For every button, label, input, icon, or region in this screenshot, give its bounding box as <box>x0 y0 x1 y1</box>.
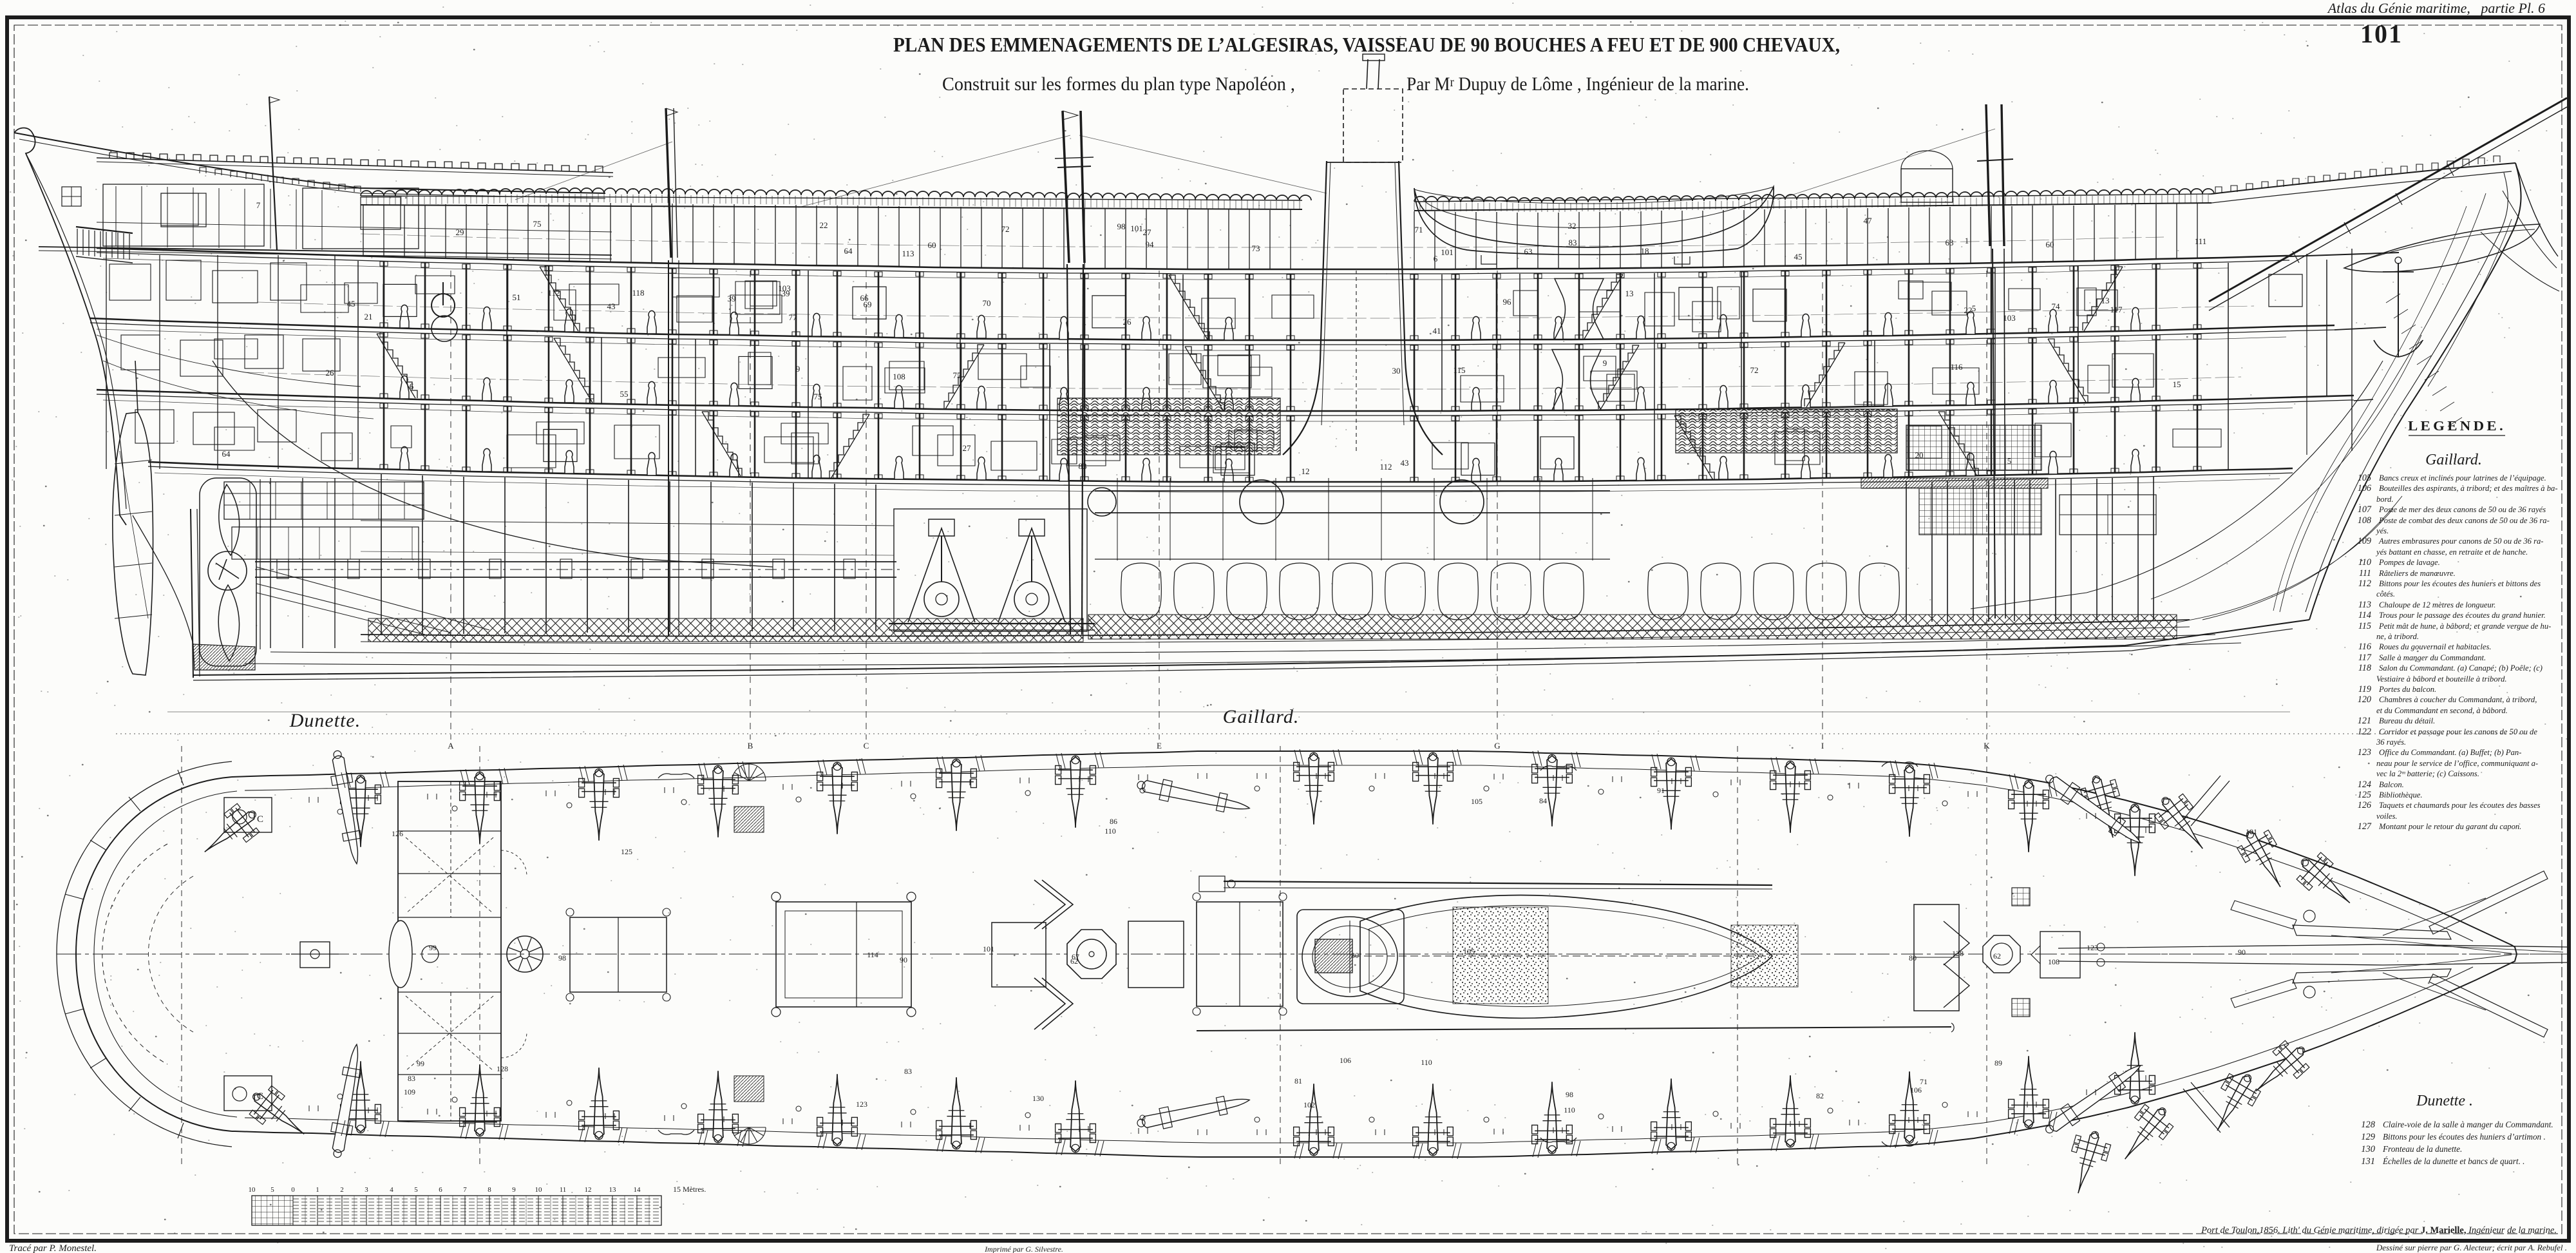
svg-text:101: 101 <box>2246 827 2257 836</box>
svg-text:9: 9 <box>512 1186 516 1194</box>
svg-text:Échelles de la dunette et banc: Échelles de la dunette et bancs de quart… <box>2382 1156 2524 1166</box>
svg-text:124: 124 <box>2358 780 2371 790</box>
svg-text:Salon du Commandant. (a) Canap: Salon du Commandant. (a) Canapé; (b) Poê… <box>2379 664 2543 673</box>
svg-text:109: 109 <box>404 1087 415 1096</box>
svg-text:41: 41 <box>1433 326 1441 336</box>
svg-text:15: 15 <box>2173 379 2181 389</box>
svg-text:71: 71 <box>1920 1077 1927 1086</box>
svg-text:Dunette .: Dunette . <box>2416 1093 2473 1109</box>
svg-text:43: 43 <box>1401 458 1409 468</box>
svg-text:81: 81 <box>1294 1076 1302 1086</box>
svg-text:64: 64 <box>222 449 231 459</box>
svg-text:101: 101 <box>1130 224 1143 233</box>
svg-text:114: 114 <box>867 950 878 959</box>
svg-text:117: 117 <box>2110 305 2123 314</box>
svg-text:63: 63 <box>1946 238 1954 247</box>
svg-text:98: 98 <box>1117 222 1126 231</box>
svg-text:99: 99 <box>429 943 437 952</box>
svg-text:47: 47 <box>1864 216 1873 225</box>
svg-text:5: 5 <box>414 1186 418 1194</box>
svg-text:côtés.: côtés. <box>2376 589 2395 598</box>
svg-text:26: 26 <box>326 368 335 378</box>
svg-text:112: 112 <box>547 288 560 298</box>
svg-text:130: 130 <box>2361 1144 2376 1154</box>
svg-text:74: 74 <box>2052 301 2061 311</box>
svg-text:B: B <box>748 741 753 751</box>
svg-text:Bureau du détail.: Bureau du détail. <box>2379 716 2435 725</box>
svg-text:75: 75 <box>814 392 822 401</box>
svg-text:C: C <box>864 741 869 751</box>
svg-text:36 rayés.: 36 rayés. <box>2376 738 2406 747</box>
svg-text:14: 14 <box>634 1186 641 1194</box>
svg-text:C: C <box>257 1091 263 1102</box>
svg-text:Montant pour le retour du gara: Montant pour le retour du garant du capo… <box>2378 822 2521 831</box>
svg-text:10: 10 <box>249 1186 256 1194</box>
svg-text:80: 80 <box>1909 953 1917 962</box>
svg-text:Râteliers de manœuvre.: Râteliers de manœuvre. <box>2378 569 2456 578</box>
svg-text:11: 11 <box>560 1186 567 1194</box>
svg-text:105: 105 <box>2358 473 2371 483</box>
svg-text:51: 51 <box>513 292 521 302</box>
svg-text:108: 108 <box>893 372 905 381</box>
svg-text:Petit mât de hune, à bâbord; e: Petit mât de hune, à bâbord; et grande v… <box>2378 622 2551 631</box>
svg-text:Construit sur les formes du pl: Construit sur les formes du plan type Na… <box>942 73 1295 95</box>
svg-text:vec la 2ᵐ batterie; (c) Caisso: vec la 2ᵐ batterie; (c) Caissons. <box>2376 769 2479 778</box>
svg-text:105: 105 <box>1471 797 1482 806</box>
svg-text:Bittons pour les écoutes des h: Bittons pour les écoutes des huniers et … <box>2379 579 2541 588</box>
svg-text:106: 106 <box>1340 1056 1351 1065</box>
svg-text:Poste de mer des deux canons d: Poste de mer des deux canons de 50 ou de… <box>2378 505 2546 514</box>
svg-text:106: 106 <box>1910 1086 1922 1095</box>
svg-text:Corridor et passage pour les c: Corridor et passage pour les canons de 5… <box>2379 727 2537 736</box>
svg-text:90: 90 <box>900 955 907 964</box>
svg-text:83: 83 <box>1079 461 1087 471</box>
svg-text:18: 18 <box>1641 246 1649 256</box>
svg-text:Chaloupe de 12 mètres de longu: Chaloupe de 12 mètres de longueur. <box>2379 600 2495 609</box>
svg-text:Bittons pour les écoutes des h: Bittons pour les écoutes des huniers d’a… <box>2383 1132 2546 1142</box>
svg-text:39: 39 <box>782 289 790 298</box>
svg-text:121: 121 <box>2358 716 2371 726</box>
svg-text:32: 32 <box>1568 221 1577 231</box>
svg-text:Roues du gouvernail et habitac: Roues du gouvernail et habitacles. <box>2378 642 2492 651</box>
svg-text:67: 67 <box>1072 952 1079 961</box>
svg-text:60: 60 <box>2046 240 2054 249</box>
svg-text:118: 118 <box>2358 663 2371 673</box>
svg-text:129: 129 <box>2361 1132 2376 1142</box>
svg-text:123: 123 <box>2087 943 2098 952</box>
svg-text:90: 90 <box>2238 948 2246 957</box>
svg-text:62: 62 <box>1993 952 2001 961</box>
svg-text:120: 120 <box>2358 694 2371 705</box>
svg-text:Gaillard.: Gaillard. <box>2425 452 2482 468</box>
svg-text:130: 130 <box>1032 1094 1044 1103</box>
svg-text:116: 116 <box>1950 362 1963 372</box>
svg-text:101: 101 <box>2360 19 2403 48</box>
svg-text:98: 98 <box>1566 1090 1573 1099</box>
svg-text:5: 5 <box>2007 456 2012 466</box>
svg-text:99: 99 <box>417 1059 424 1068</box>
svg-text:12: 12 <box>585 1186 592 1194</box>
svg-text:110: 110 <box>1104 827 1116 836</box>
svg-text:voiles.: voiles. <box>2376 812 2398 821</box>
svg-text:55: 55 <box>620 389 629 399</box>
svg-text:7: 7 <box>256 200 261 210</box>
svg-text:72: 72 <box>1001 224 1010 234</box>
svg-text:20: 20 <box>1915 450 1924 460</box>
svg-text:yés battant en chasse, en retr: yés battant en chasse, en retraite et de… <box>2375 548 2528 557</box>
svg-text:neau pour le service de l’offi: neau pour le service de l’office, commun… <box>2376 759 2538 768</box>
svg-text:126: 126 <box>392 829 403 838</box>
svg-text:Bancs creux et inclinés pour l: Bancs creux et inclinés pour latrines de… <box>2379 473 2546 483</box>
svg-text:Office du Commandant. (a) Buff: Office du Commandant. (a) Buffet; (b) Pa… <box>2379 748 2521 757</box>
svg-text:64: 64 <box>844 246 853 256</box>
svg-text:22: 22 <box>820 220 828 230</box>
svg-text:39: 39 <box>728 294 736 303</box>
svg-text:70: 70 <box>983 298 991 308</box>
svg-text:103: 103 <box>2003 313 2016 323</box>
svg-text:60: 60 <box>928 240 936 250</box>
svg-text:101: 101 <box>983 944 994 953</box>
svg-text:108: 108 <box>2048 957 2060 966</box>
svg-text:96: 96 <box>1503 297 1512 307</box>
svg-text:Dunette.: Dunette. <box>289 710 361 731</box>
svg-text:Chambres à coucher du Commanda: Chambres à coucher du Commandant, à trib… <box>2379 695 2537 704</box>
svg-text:Fronteau de la dunette.: Fronteau de la dunette. <box>2382 1144 2462 1154</box>
svg-text:Vestiaire à bâbord et bouteill: Vestiaire à bâbord et bouteille à tribor… <box>2376 674 2507 684</box>
svg-text:113: 113 <box>2358 600 2371 610</box>
svg-text:83: 83 <box>904 1067 912 1076</box>
svg-text:ne, à tribord.: ne, à tribord. <box>2376 632 2419 641</box>
svg-text:72: 72 <box>1750 365 1759 375</box>
svg-text:125: 125 <box>621 847 632 856</box>
svg-text:45: 45 <box>1794 252 1803 262</box>
svg-text:6: 6 <box>1434 254 1438 263</box>
svg-text:Poste de combat des deux canon: Poste de combat des deux canons de 50 ou… <box>2378 516 2550 525</box>
svg-text:94: 94 <box>1146 240 1155 249</box>
svg-text:C: C <box>257 814 263 825</box>
svg-text:91: 91 <box>1657 786 1665 795</box>
svg-text:Tracé par P. Monestel.: Tracé par P. Monestel. <box>9 1243 97 1253</box>
svg-text:77: 77 <box>789 312 798 322</box>
svg-text:Balcon.: Balcon. <box>2379 780 2404 789</box>
svg-text:106: 106 <box>2358 483 2372 493</box>
svg-text:108: 108 <box>2358 515 2371 526</box>
svg-text:89: 89 <box>1994 1058 2002 1067</box>
svg-text:82: 82 <box>1816 1091 1824 1100</box>
svg-text:Imprimé par G. Silvestre.: Imprimé par G. Silvestre. <box>984 1245 1063 1253</box>
svg-text:83: 83 <box>1569 238 1577 247</box>
svg-text:111: 111 <box>2359 568 2371 579</box>
svg-text:131: 131 <box>2361 1156 2375 1167</box>
svg-text:128: 128 <box>497 1064 508 1073</box>
svg-text:A: A <box>448 741 454 751</box>
svg-text:110: 110 <box>1421 1058 1432 1067</box>
svg-text:3: 3 <box>365 1186 368 1194</box>
svg-text:Bouteilles des aspirants, à tr: Bouteilles des aspirants, à tribord; et … <box>2379 484 2558 493</box>
svg-text:Trous pour le passage des écou: Trous pour le passage des écoutes du gra… <box>2379 611 2546 620</box>
svg-text:1: 1 <box>316 1186 319 1194</box>
svg-text:15 Mètres.: 15 Mètres. <box>673 1185 706 1194</box>
svg-text:107: 107 <box>2358 504 2372 515</box>
svg-text:110: 110 <box>1564 1105 1575 1114</box>
svg-text:E: E <box>1157 741 1162 751</box>
svg-text:Par Mr Dupuy de Lôme , Ingénie: Par Mr Dupuy de Lôme , Ingénieur de la m… <box>1406 73 1749 95</box>
svg-text:et du Commandant en second, à: et du Commandant en second, à bâbord. <box>2376 706 2508 715</box>
svg-text:30: 30 <box>1392 366 1401 376</box>
svg-text:84: 84 <box>1539 796 1547 805</box>
svg-text:Salle à manger du Commandant.: Salle à manger du Commandant. <box>2379 653 2486 662</box>
svg-text:13: 13 <box>609 1186 617 1194</box>
svg-text:12: 12 <box>1302 466 1310 476</box>
svg-text:109: 109 <box>2358 536 2371 546</box>
svg-text:6: 6 <box>439 1186 442 1194</box>
svg-text:71: 71 <box>1415 225 1423 234</box>
svg-text:126: 126 <box>2358 800 2372 810</box>
svg-text:I: I <box>1821 741 1824 751</box>
svg-text:22: 22 <box>1964 305 1973 315</box>
svg-text:Atlas du Génie maritime, par: Atlas du Génie maritime, partie Pl. 6 <box>2327 0 2545 16</box>
svg-text:114: 114 <box>2358 610 2371 620</box>
svg-text:27: 27 <box>963 443 972 453</box>
svg-text:5: 5 <box>270 1186 274 1194</box>
svg-text:Port de Toulon,1856. Lithʹ du: Port de Toulon,1856. Lithʹ du Génie mari… <box>2201 1225 2557 1236</box>
svg-text:102: 102 <box>1303 1100 1315 1109</box>
svg-text:123: 123 <box>2358 747 2371 758</box>
svg-text:83: 83 <box>408 1074 415 1083</box>
svg-text:Taquets et chaumards pour les: Taquets et chaumards pour les écoutes de… <box>2379 801 2541 810</box>
svg-text:86: 86 <box>1110 817 1117 826</box>
svg-text:66: 66 <box>860 293 869 303</box>
svg-text:PLAN DES EMMENAGEMENTS DE: PLAN DES EMMENAGEMENTS DE L’ALGESIRAS, V… <box>893 33 1840 56</box>
svg-text:Portes du balcon.: Portes du balcon. <box>2378 685 2436 694</box>
svg-text:9: 9 <box>1603 358 1607 368</box>
svg-text:117: 117 <box>2358 653 2372 663</box>
svg-text:Claire-voie de la salle à mang: Claire-voie de la salle à manger du Comm… <box>2383 1120 2553 1129</box>
svg-text:128: 128 <box>1952 949 1964 958</box>
svg-text:118: 118 <box>632 288 644 298</box>
svg-text:112: 112 <box>2358 579 2371 589</box>
svg-text:Autres embrasures pour canons: Autres embrasures pour canons de 50 ou d… <box>2378 537 2543 546</box>
svg-text:G: G <box>1494 741 1500 751</box>
svg-text:13: 13 <box>1625 289 1634 298</box>
svg-text:7: 7 <box>463 1186 467 1194</box>
svg-text:110: 110 <box>2358 557 2371 568</box>
svg-text:119: 119 <box>2358 684 2371 694</box>
svg-text:21: 21 <box>365 312 373 321</box>
svg-text:0: 0 <box>291 1186 295 1194</box>
svg-text:4: 4 <box>390 1186 393 1194</box>
svg-text:112: 112 <box>1379 462 1392 472</box>
svg-text:8: 8 <box>488 1186 491 1194</box>
svg-text:101: 101 <box>1441 247 1454 257</box>
svg-text:Gaillard.: Gaillard. <box>1223 706 1300 727</box>
svg-text:63: 63 <box>1524 247 1533 256</box>
svg-text:80: 80 <box>1351 951 1359 960</box>
svg-text:27: 27 <box>1143 227 1152 237</box>
svg-text:1: 1 <box>1965 236 1969 245</box>
svg-text:105: 105 <box>1463 947 1475 956</box>
svg-text:Pompes de lavage.: Pompes de lavage. <box>2378 558 2440 567</box>
svg-text:113: 113 <box>902 249 914 258</box>
svg-text:43: 43 <box>607 301 616 311</box>
svg-text:75: 75 <box>953 370 961 380</box>
svg-text:9: 9 <box>796 364 800 374</box>
svg-text:115: 115 <box>2358 621 2371 631</box>
svg-text:Bibliothèque.: Bibliothèque. <box>2379 790 2423 799</box>
svg-text:5: 5 <box>1972 303 1976 313</box>
svg-text:116: 116 <box>2358 642 2372 652</box>
svg-text:13: 13 <box>2101 296 2110 305</box>
svg-text:115: 115 <box>1453 365 1465 375</box>
svg-text:Dessiné sur pierre par G. Alec: Dessiné sur pierre par G. Alecteur; écri… <box>2376 1243 2567 1252</box>
svg-text:122: 122 <box>2358 727 2371 737</box>
svg-text:bord.: bord. <box>2376 495 2393 504</box>
svg-text:128: 128 <box>2361 1120 2376 1130</box>
svg-text:127: 127 <box>2358 821 2372 832</box>
svg-text:111: 111 <box>2195 236 2207 246</box>
svg-text:10: 10 <box>535 1186 543 1194</box>
svg-text:75: 75 <box>533 219 542 229</box>
svg-text:125: 125 <box>2358 790 2371 800</box>
svg-text:yés.: yés. <box>2375 526 2389 535</box>
svg-text:2: 2 <box>340 1186 344 1194</box>
svg-text:29: 29 <box>456 227 464 237</box>
svg-text:26: 26 <box>1123 317 1132 327</box>
svg-text:45: 45 <box>347 299 355 309</box>
svg-text:73: 73 <box>1252 244 1260 253</box>
svg-text:6: 6 <box>410 381 414 391</box>
svg-text:98: 98 <box>558 953 566 962</box>
svg-text:LEGENDE.: LEGENDE. <box>2408 418 2506 434</box>
svg-text:123: 123 <box>856 1100 867 1109</box>
